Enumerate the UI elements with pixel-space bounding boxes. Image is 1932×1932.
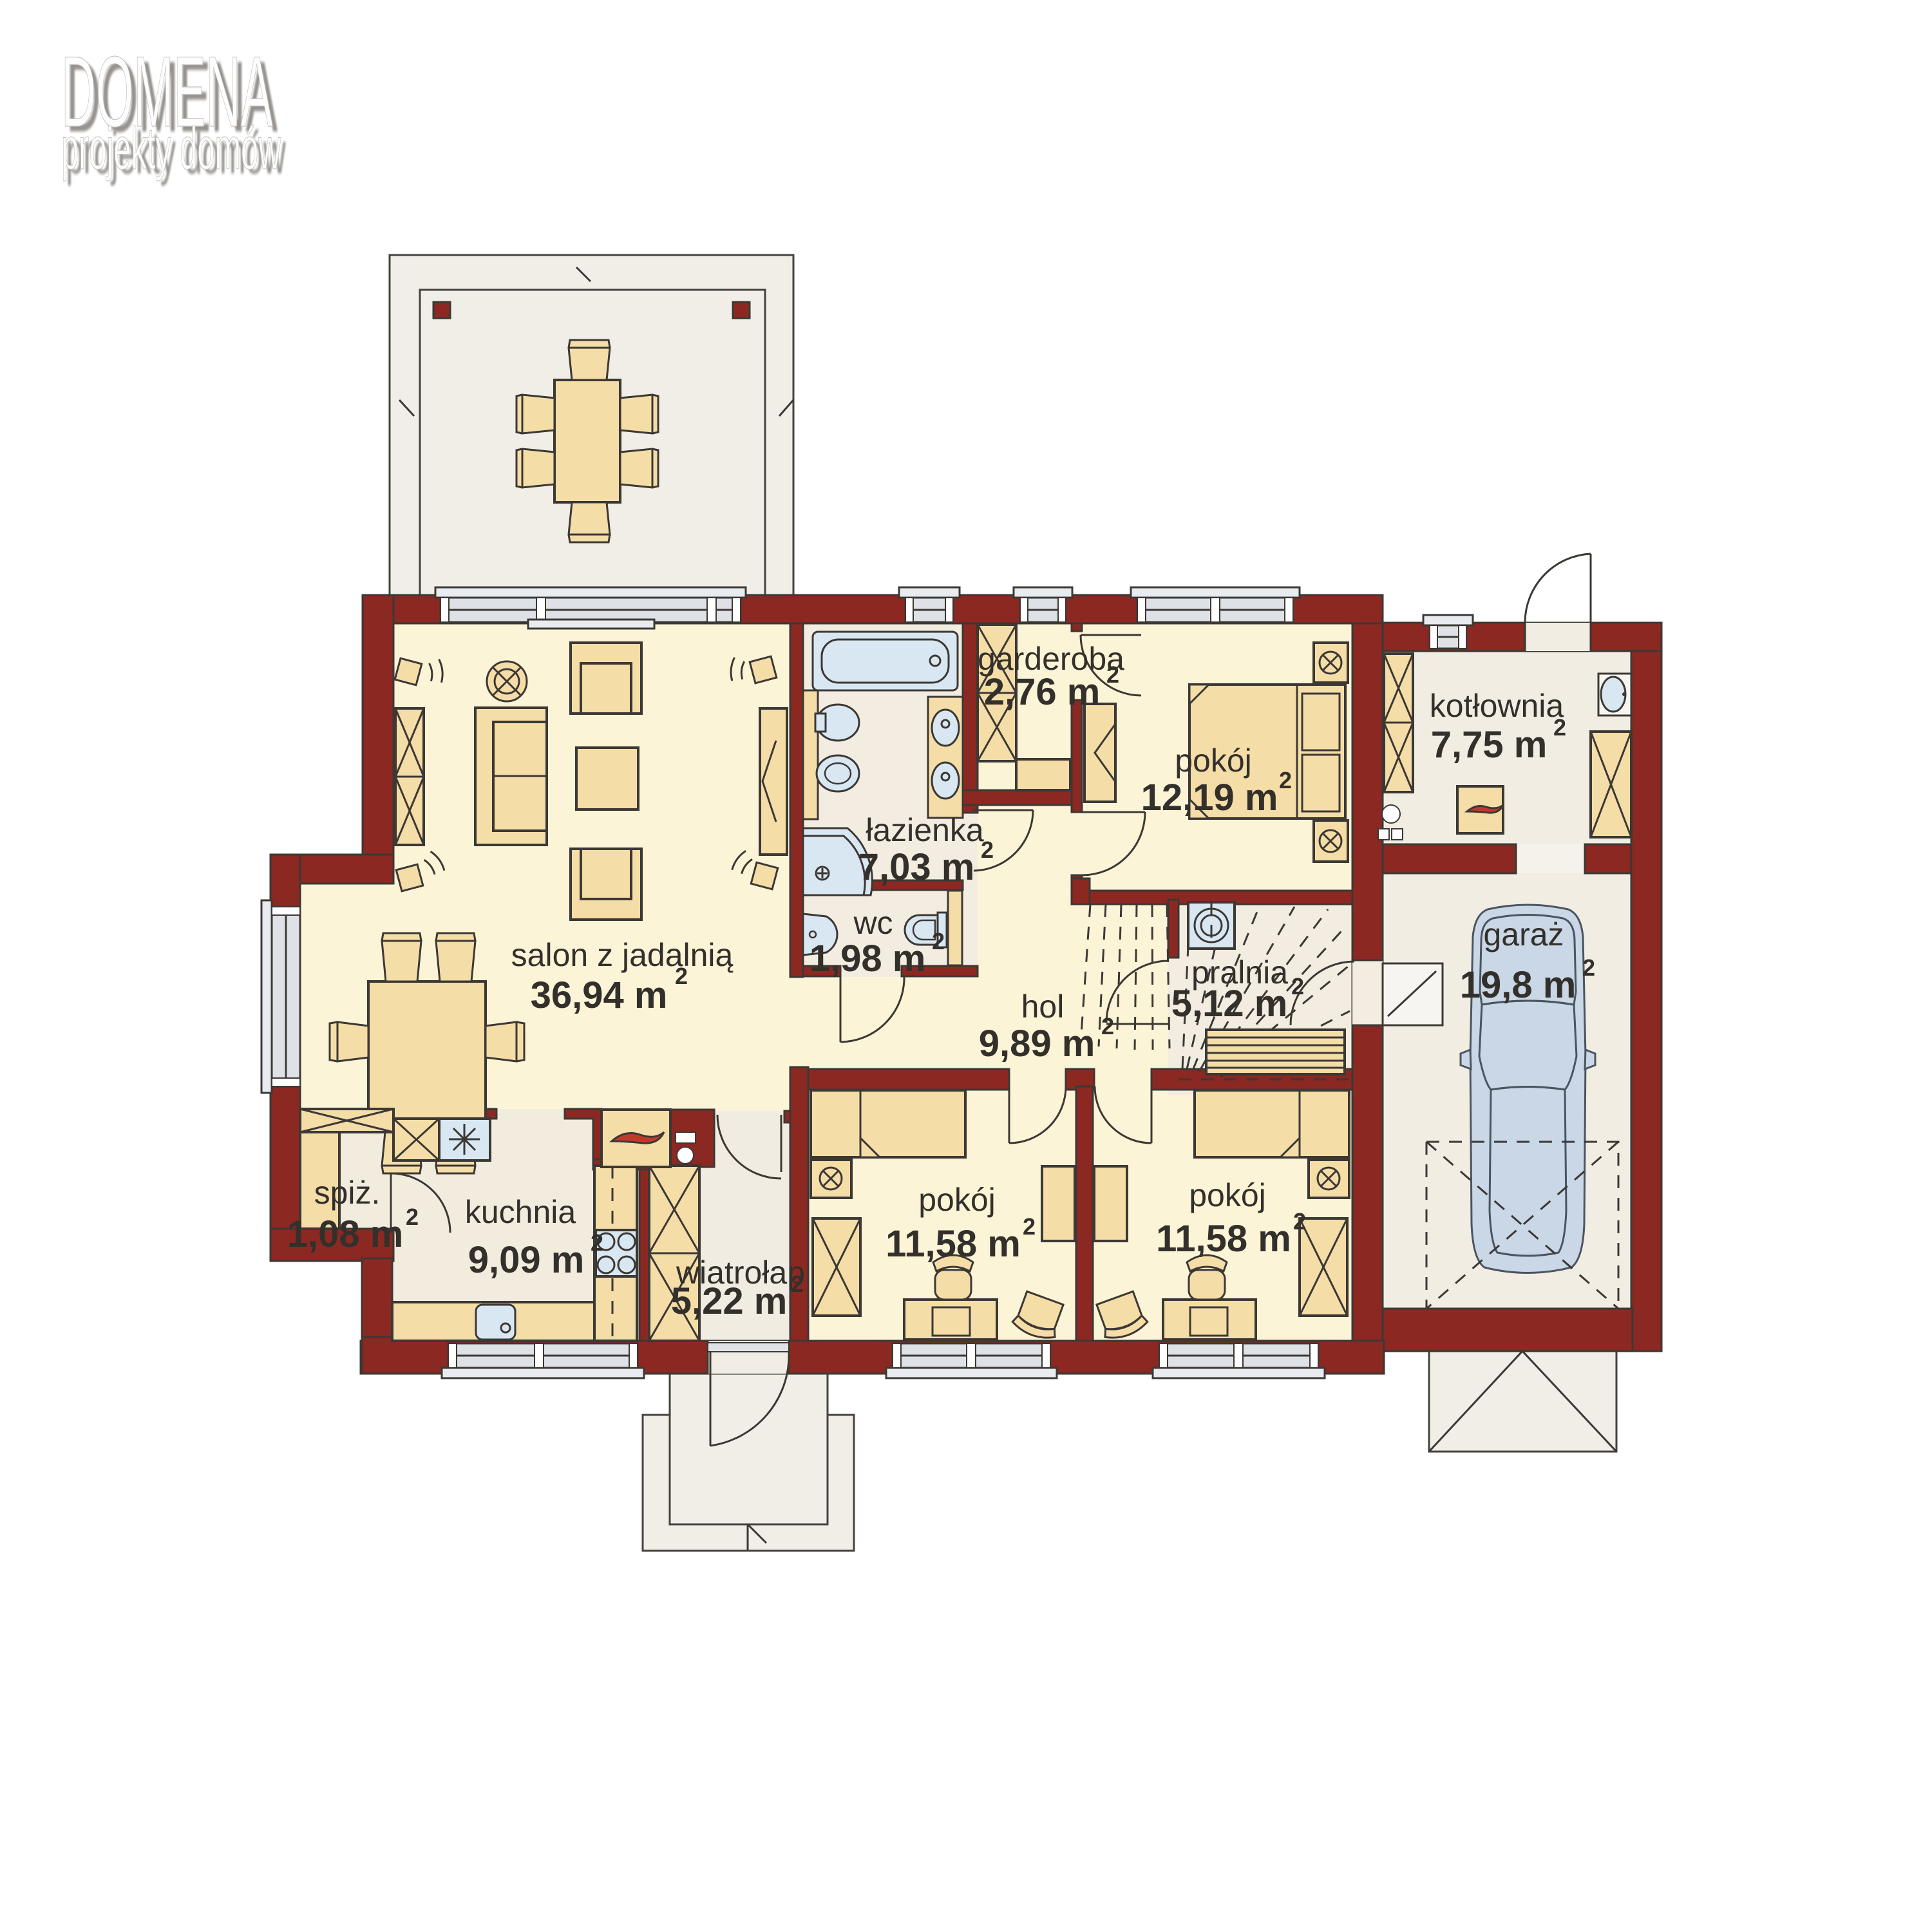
svg-text:wc: wc [853,905,893,941]
svg-text:11,58 m: 11,58 m [1156,1218,1291,1260]
svg-text:5,12 m: 5,12 m [1171,983,1288,1025]
svg-text:2: 2 [981,837,994,863]
svg-text:pokój: pokój [1189,1177,1266,1213]
svg-text:1,08 m: 1,08 m [287,1213,404,1255]
svg-text:1,98 m: 1,98 m [810,938,926,980]
svg-text:projekty domów: projekty domów [61,115,281,182]
svg-text:2: 2 [1582,954,1595,981]
svg-text:salon z jadalnią: salon z jadalnią [511,937,734,973]
svg-text:5,22 m: 5,22 m [671,1280,788,1322]
svg-text:kotłownia: kotłownia [1430,688,1564,724]
svg-text:2: 2 [1101,1013,1114,1039]
svg-text:7,75 m: 7,75 m [1431,724,1548,766]
svg-text:łazienka: łazienka [866,812,984,848]
svg-text:2: 2 [675,963,688,989]
svg-text:pokój: pokój [1175,743,1252,779]
svg-text:2: 2 [932,928,945,954]
svg-text:7,03 m: 7,03 m [858,846,975,888]
svg-text:hol: hol [1021,989,1065,1025]
svg-text:12,19 m: 12,19 m [1141,777,1278,819]
svg-text:spiż.: spiż. [314,1175,381,1211]
svg-text:2: 2 [406,1204,419,1230]
svg-text:2: 2 [1279,767,1292,793]
svg-text:2: 2 [1293,1208,1306,1235]
svg-text:2,76 m: 2,76 m [984,671,1101,713]
svg-text:2: 2 [1553,714,1566,741]
svg-text:garaż: garaż [1483,916,1564,952]
svg-text:19,8 m: 19,8 m [1460,964,1577,1006]
svg-text:pokój: pokój [918,1182,996,1218]
svg-text:2: 2 [591,1229,603,1256]
svg-text:2: 2 [1291,973,1304,999]
svg-text:9,09 m: 9,09 m [468,1239,585,1281]
svg-text:11,58 m: 11,58 m [885,1223,1021,1265]
svg-text:2: 2 [1106,661,1119,688]
svg-text:2: 2 [1023,1213,1036,1240]
svg-text:36,94 m: 36,94 m [531,974,668,1016]
svg-text:9,89 m: 9,89 m [979,1023,1095,1065]
svg-text:2: 2 [791,1271,804,1297]
svg-text:kuchnia: kuchnia [465,1194,576,1230]
